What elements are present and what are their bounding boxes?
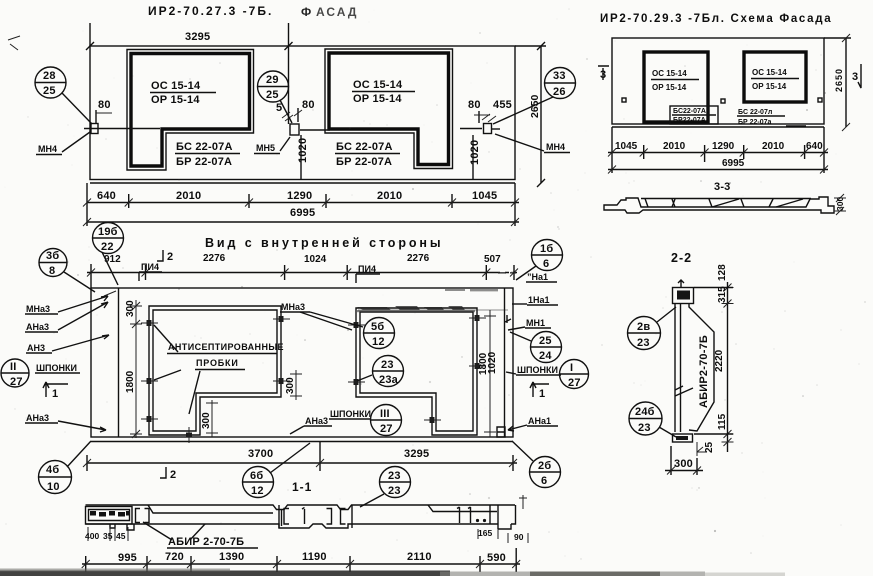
svg-text:23а: 23а (379, 374, 399, 386)
svg-text:III: III (380, 408, 390, 420)
svg-text:БС22-07А: БС22-07А (673, 108, 706, 115)
svg-text:1024: 1024 (304, 254, 327, 265)
svg-text:ИР2-70.29.3 -7Бл. Схема Фасада: ИР2-70.29.3 -7Бл. Схема Фасада (600, 13, 832, 25)
svg-text:АНа3: АНа3 (305, 416, 328, 426)
svg-text:2010: 2010 (377, 190, 402, 202)
svg-text:1045: 1045 (472, 190, 497, 202)
svg-text:3295: 3295 (185, 31, 210, 43)
svg-text:1: 1 (539, 388, 545, 400)
svg-text:4б: 4б (46, 464, 59, 476)
svg-text:МНа3: МНа3 (26, 304, 50, 314)
svg-text:5б: 5б (371, 321, 384, 333)
svg-text:”На1: ”На1 (527, 272, 548, 282)
svg-text:6995: 6995 (722, 158, 745, 169)
svg-text:ПИ4: ПИ4 (358, 264, 376, 274)
svg-text:ОС 15-14: ОС 15-14 (652, 69, 687, 78)
svg-text:ОС 15-14: ОС 15-14 (752, 68, 787, 77)
svg-text:БР 22-07А: БР 22-07А (176, 156, 232, 168)
svg-text:БР 22-07А: БР 22-07А (336, 156, 392, 168)
svg-text:1б: 1б (540, 243, 553, 255)
svg-text:ОР 15-14: ОР 15-14 (752, 82, 787, 91)
svg-text:80: 80 (98, 99, 111, 111)
svg-text:2110: 2110 (407, 551, 432, 563)
svg-text:19б: 19б (98, 226, 118, 238)
svg-text:995: 995 (118, 552, 137, 564)
svg-text:128: 128 (717, 264, 728, 281)
svg-text:25: 25 (704, 441, 715, 453)
svg-text:24: 24 (539, 350, 552, 362)
svg-text:27: 27 (380, 423, 393, 435)
svg-text:1190: 1190 (302, 551, 327, 563)
svg-text:29: 29 (266, 74, 279, 86)
svg-text:АН3: АН3 (27, 343, 45, 353)
svg-text:2б: 2б (538, 460, 551, 472)
svg-text:8: 8 (49, 265, 55, 277)
svg-text:БС 22-07л: БС 22-07л (738, 109, 772, 116)
svg-text:ПРОБКИ: ПРОБКИ (196, 358, 239, 368)
svg-text:35: 35 (103, 531, 113, 541)
svg-text:24б: 24б (635, 406, 655, 418)
svg-text:12: 12 (372, 336, 385, 348)
svg-text:АНа3: АНа3 (26, 413, 49, 423)
svg-text:23: 23 (388, 485, 401, 497)
svg-text:315: 315 (717, 286, 728, 303)
svg-text:1020: 1020 (487, 351, 498, 374)
svg-text:10: 10 (47, 481, 60, 493)
svg-text:1290: 1290 (712, 141, 735, 152)
svg-text:3б: 3б (46, 250, 59, 262)
svg-text:90: 90 (514, 532, 524, 542)
svg-text:300: 300 (201, 412, 212, 429)
svg-text:6: 6 (541, 475, 547, 487)
svg-text:507: 507 (484, 254, 501, 265)
svg-text:2220: 2220 (714, 349, 725, 372)
svg-text:25: 25 (266, 89, 279, 101)
svg-text:25: 25 (539, 335, 552, 347)
svg-text:АНТИСЕПТИРОВАННЫЕ: АНТИСЕПТИРОВАННЫЕ (168, 342, 284, 352)
svg-text:3700: 3700 (248, 448, 273, 460)
svg-text:МН4: МН4 (38, 144, 57, 154)
svg-text:28: 28 (43, 70, 56, 82)
svg-text:23: 23 (388, 470, 401, 482)
svg-text:1290: 1290 (287, 190, 312, 202)
svg-text:640: 640 (97, 190, 116, 202)
svg-text:ОР 15-14: ОР 15-14 (652, 83, 687, 92)
svg-text:ОС 15-14: ОС 15-14 (151, 80, 201, 92)
svg-text:3295: 3295 (404, 448, 429, 460)
svg-text:1: 1 (52, 388, 58, 400)
svg-text:2: 2 (167, 251, 173, 263)
svg-text:ШПОНКИ: ШПОНКИ (36, 363, 77, 373)
svg-text:26: 26 (553, 86, 566, 98)
svg-text:1800: 1800 (125, 370, 136, 393)
svg-text:МН4: МН4 (546, 142, 565, 152)
svg-text:300: 300 (835, 197, 845, 211)
svg-text:6: 6 (543, 258, 549, 270)
svg-text:590: 590 (487, 552, 506, 564)
svg-text:1020: 1020 (469, 140, 481, 165)
svg-text:1020: 1020 (297, 138, 309, 163)
svg-text:2в: 2в (637, 321, 650, 333)
svg-text:300: 300 (125, 300, 136, 317)
svg-text:ШПОНКИ: ШПОНКИ (330, 409, 371, 419)
svg-text:2-2: 2-2 (671, 251, 692, 265)
svg-text:МН1: МН1 (526, 318, 545, 328)
svg-text:ПИ4: ПИ4 (141, 262, 159, 272)
svg-text:2650: 2650 (529, 94, 541, 118)
svg-text:МНа3: МНа3 (281, 302, 305, 312)
svg-text:300: 300 (285, 377, 296, 394)
svg-text:25: 25 (43, 85, 56, 97)
svg-text:АБИР 2-70-7Б: АБИР 2-70-7Б (168, 536, 244, 548)
svg-text:ШПОНКИ: ШПОНКИ (517, 365, 558, 375)
svg-text:2010: 2010 (176, 190, 201, 202)
svg-text:1-1: 1-1 (292, 480, 312, 494)
svg-text:6б: 6б (250, 470, 263, 482)
svg-text:3-3: 3-3 (714, 181, 731, 193)
svg-text:БР22-07А: БР22-07А (673, 117, 706, 124)
svg-text:115: 115 (717, 413, 728, 430)
svg-text:45: 45 (116, 531, 126, 541)
svg-text:1390: 1390 (219, 551, 244, 563)
svg-text:БС 22-07А: БС 22-07А (176, 141, 233, 153)
svg-text:27: 27 (10, 376, 23, 388)
svg-text:I: I (570, 362, 573, 374)
svg-text:1045: 1045 (615, 141, 638, 152)
svg-text:ОС 15-14: ОС 15-14 (353, 79, 403, 91)
svg-text:Вид с внутренней стороны: Вид с внутренней стороны (205, 236, 443, 250)
svg-text:80: 80 (302, 99, 315, 111)
svg-text:МН5: МН5 (256, 143, 275, 153)
svg-text:80: 80 (468, 99, 481, 111)
svg-text:3: 3 (852, 71, 858, 83)
svg-text:23: 23 (637, 337, 650, 349)
svg-text:АСАД: АСАД (316, 5, 358, 19)
svg-text:ИР2-70.27.3 -7Б.: ИР2-70.27.3 -7Б. (148, 4, 273, 18)
svg-text:БС 22-07А: БС 22-07А (336, 141, 393, 153)
svg-text:640: 640 (806, 141, 823, 152)
svg-text:23: 23 (381, 359, 394, 371)
svg-text:II: II (10, 361, 17, 373)
svg-text:912: 912 (104, 254, 121, 265)
svg-text:27: 27 (568, 377, 581, 389)
svg-text:АНа3: АНа3 (26, 322, 49, 332)
svg-text:2010: 2010 (663, 141, 686, 152)
svg-text:1На1: 1На1 (528, 295, 550, 305)
svg-text:Ф: Ф (301, 5, 313, 19)
svg-text:300: 300 (674, 458, 693, 470)
svg-text:ОР 15-14: ОР 15-14 (353, 93, 402, 105)
svg-text:6995: 6995 (290, 207, 315, 219)
svg-text:22: 22 (101, 241, 114, 253)
svg-text:БР 22-07а: БР 22-07а (738, 119, 772, 126)
svg-text:12: 12 (251, 485, 264, 497)
svg-text:400: 400 (85, 531, 99, 541)
svg-text:2: 2 (170, 469, 176, 481)
svg-text:2650: 2650 (834, 68, 844, 92)
svg-text:2276: 2276 (203, 253, 226, 264)
svg-text:2276: 2276 (407, 253, 430, 264)
svg-text:33: 33 (553, 70, 566, 82)
svg-text:455: 455 (493, 99, 512, 111)
svg-text:ОР 15-14: ОР 15-14 (151, 94, 200, 106)
svg-text:23: 23 (638, 422, 651, 434)
svg-text:АНа1: АНа1 (528, 416, 551, 426)
svg-text:720: 720 (165, 551, 184, 563)
svg-text:165: 165 (478, 528, 492, 538)
